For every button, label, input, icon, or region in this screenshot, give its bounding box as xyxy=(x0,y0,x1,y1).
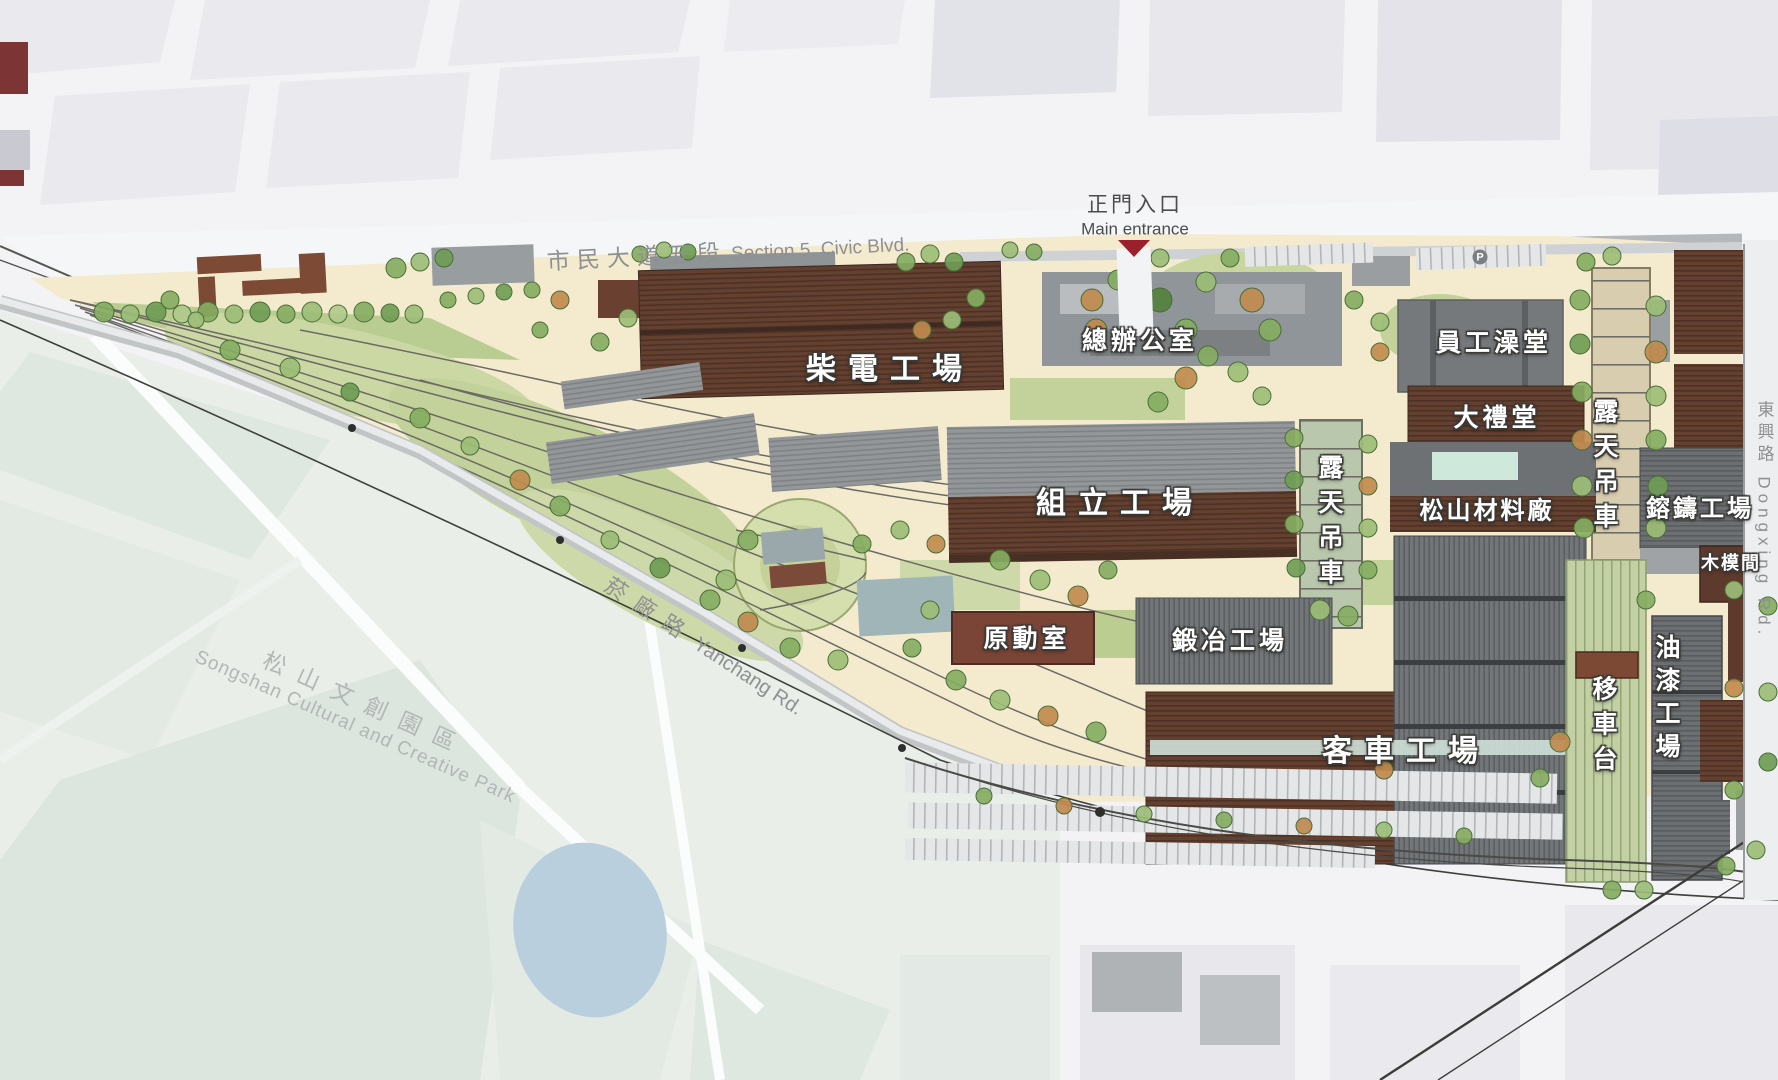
traverser-corridor xyxy=(1566,560,1646,882)
parking-icon: P xyxy=(1473,250,1488,265)
building-forging-workshop xyxy=(1136,598,1332,684)
building-material-depot xyxy=(1390,442,1596,532)
building-general-office xyxy=(1042,272,1342,366)
site-plan-map[interactable]: 正門入口 Main entrance 市民大道五段 Section 5, Civ… xyxy=(0,0,1778,1080)
open-air-crane-center-corridor xyxy=(1300,420,1362,628)
building-auditorium xyxy=(1408,386,1584,444)
entrance-walkway xyxy=(1117,247,1154,336)
dongxing-road xyxy=(1744,240,1778,900)
building-assembly-workshop xyxy=(947,421,1297,563)
map-canvas xyxy=(0,0,1778,1080)
main-entrance-marker xyxy=(1118,240,1150,257)
building-employee-bathhouse xyxy=(1398,300,1563,392)
